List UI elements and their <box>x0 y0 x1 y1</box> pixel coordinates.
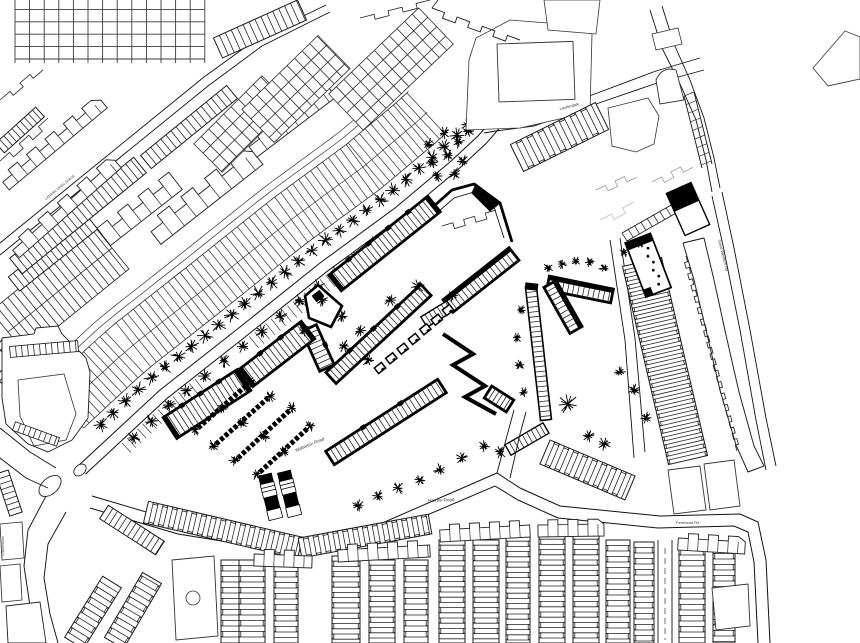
svg-text:Harrow Road: Harrow Road <box>428 497 455 503</box>
svg-text:Chippenham: Chippenham <box>1 536 5 556</box>
svg-text:Fernhead Rd: Fernhead Rd <box>676 520 699 525</box>
